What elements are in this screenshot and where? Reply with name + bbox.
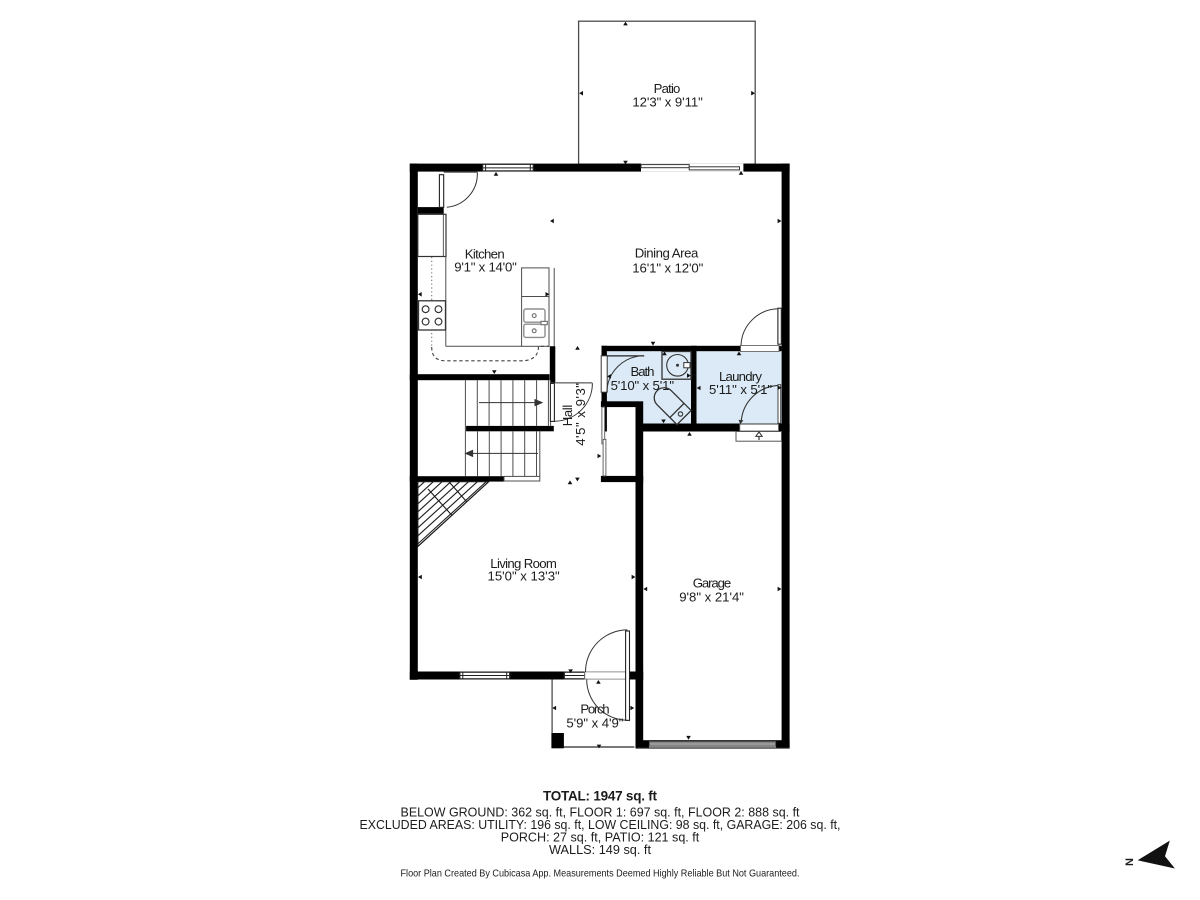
svg-text:Garage: Garage [693,576,731,591]
svg-text:5'11" x 5'1": 5'11" x 5'1" [709,382,772,397]
svg-text:9'1" x 14'0": 9'1" x 14'0" [454,260,517,275]
svg-text:N: N [1124,858,1136,866]
svg-text:Porch: Porch [580,702,609,717]
svg-text:4'5" x 9'3": 4'5" x 9'3" [573,383,588,446]
svg-text:Floor Plan Created By Cubicasa: Floor Plan Created By Cubicasa App. Meas… [401,868,800,880]
svg-text:16'1" x 12'0": 16'1" x 12'0" [632,261,703,276]
svg-text:TOTAL: 1947 sq. ft: TOTAL: 1947 sq. ft [543,789,658,804]
svg-text:15'0" x 13'3": 15'0" x 13'3" [488,569,561,584]
svg-text:12'3" x 9'11": 12'3" x 9'11" [632,95,703,110]
svg-text:Bath: Bath [631,364,655,379]
svg-text:5'9" x 4'9": 5'9" x 4'9" [566,715,623,730]
svg-text:Dining Area: Dining Area [635,246,699,261]
svg-text:5'10" x 5'1": 5'10" x 5'1" [611,378,675,393]
svg-text:WALLS: 149 sq. ft: WALLS: 149 sq. ft [549,842,651,857]
svg-text:9'8" x 21'4": 9'8" x 21'4" [679,589,744,604]
